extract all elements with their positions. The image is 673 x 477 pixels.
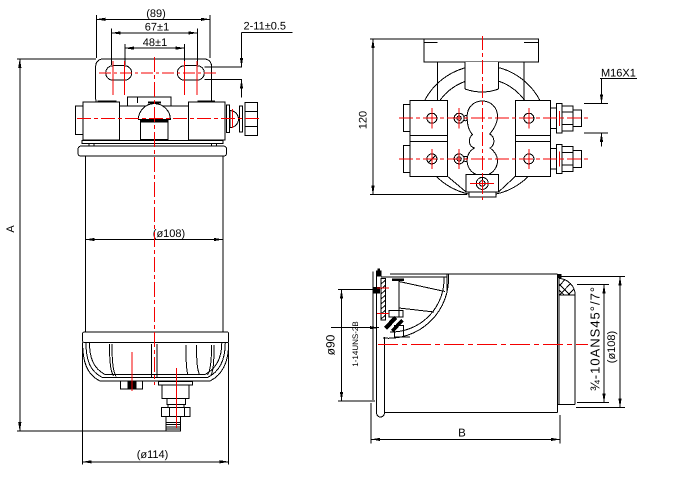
svg-text:ø90: ø90 [324,334,338,355]
svg-text:67±1: 67±1 [145,22,169,34]
svg-text:B: B [458,428,466,440]
svg-text:(ø114): (ø114) [137,449,169,461]
svg-text:(ø108): (ø108) [153,228,185,240]
svg-text:48±1: 48±1 [143,37,167,49]
svg-text:¾-10ANS45°/7°: ¾-10ANS45°/7° [588,286,603,391]
svg-text:A: A [5,225,17,233]
svg-text:120: 120 [358,111,370,129]
svg-text:M16X1: M16X1 [601,68,636,80]
svg-text:(ø108): (ø108) [606,331,618,363]
svg-text:(89): (89) [146,8,166,20]
svg-text:1-14UNS-2B: 1-14UNS-2B [351,321,360,366]
svg-text:2-11±0.5: 2-11±0.5 [244,21,287,33]
